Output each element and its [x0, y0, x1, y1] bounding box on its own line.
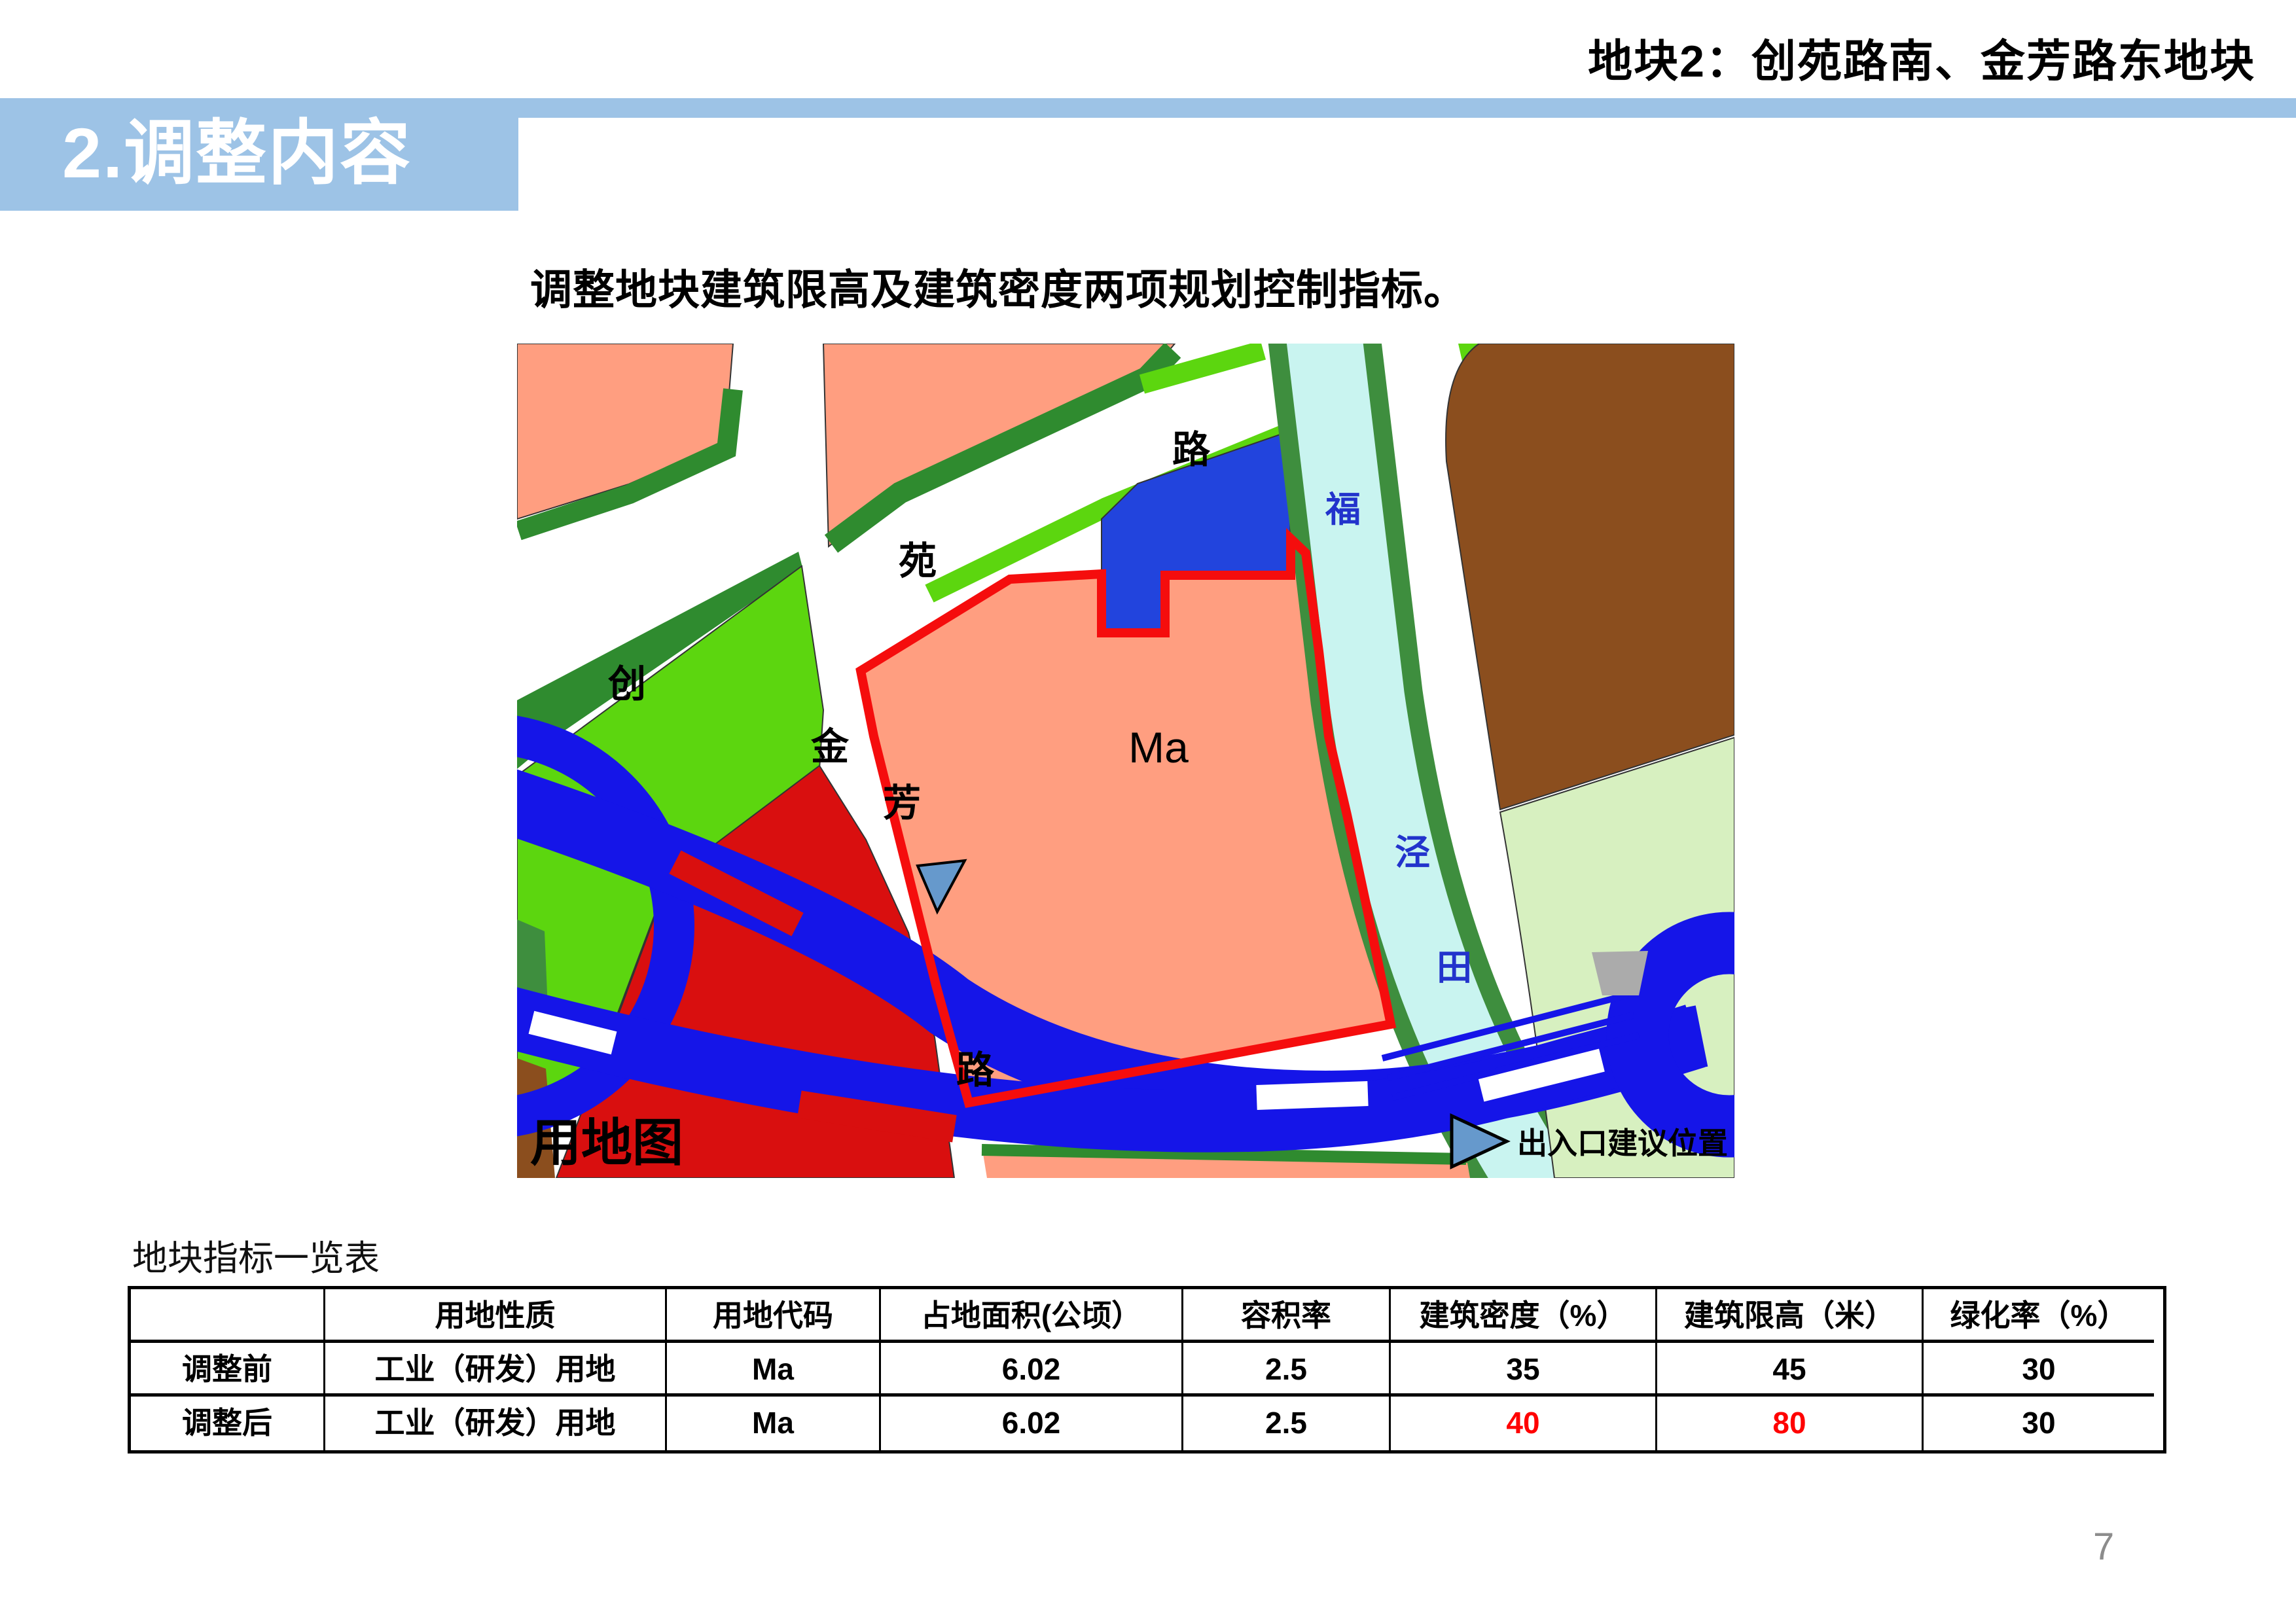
table-cell: 30 — [1924, 1343, 2154, 1397]
table-header-cell: 占地面积(公顷） — [881, 1289, 1183, 1343]
road-label-fang: 芳 — [883, 782, 921, 825]
road-label-yuan: 苑 — [899, 540, 937, 582]
table-header-cell: 建筑密度（%） — [1391, 1289, 1657, 1343]
road-label-jin: 金 — [811, 726, 850, 768]
subtitle-text: 调整地块建筑限高及建筑密度两项规划控制指标。 — [530, 257, 1466, 317]
table-cell: Ma — [667, 1397, 881, 1450]
slide-title: 地块2：创苑路南、金芳路东地块 — [1588, 25, 2255, 90]
table-header-cell: 用地性质 — [325, 1289, 667, 1343]
table-caption: 地块指标一览表 — [132, 1229, 380, 1281]
table-cell: 调整前 — [131, 1343, 325, 1397]
table-cell-highlight: 80 — [1657, 1397, 1924, 1450]
parcel-brown — [1446, 344, 1734, 810]
table-header-cell: 绿化率（%） — [1924, 1289, 2154, 1343]
river-label-fu: 福 — [1325, 490, 1361, 529]
parcel-label-ma: Ma — [1128, 723, 1189, 772]
table-cell: 2.5 — [1183, 1397, 1391, 1450]
table-cell: 6.02 — [881, 1397, 1183, 1450]
legend-entrance-label: 出入口建议位置 — [1517, 1126, 1728, 1160]
table-cell: 工业（研发）用地 — [325, 1397, 667, 1450]
table-header-cell: 建筑限高（米） — [1657, 1289, 1924, 1343]
table-cell: 45 — [1657, 1343, 1924, 1397]
page-number: 7 — [2093, 1525, 2114, 1569]
road-label-lu-top: 路 — [1172, 429, 1211, 471]
section-header-text: 2.调整内容 — [62, 98, 412, 211]
land-use-map-svg: 创 苑 路 金 芳 路 福 泾 田 Ma 用地图 出入口建议位置 — [517, 344, 1734, 1178]
map-corner-label: 用地图 — [530, 1114, 683, 1171]
road-label-lu-bottom: 路 — [956, 1049, 995, 1092]
table-cell: 2.5 — [1183, 1343, 1391, 1397]
table-header-cell: 容积率 — [1183, 1289, 1391, 1343]
road-label-chuang: 创 — [608, 663, 646, 705]
indicator-table: 用地性质 用地代码 占地面积(公顷） 容积率 建筑密度（%） 建筑限高（米） 绿… — [128, 1286, 2166, 1454]
median-slot-white-2 — [1256, 1081, 1368, 1110]
land-use-map: 创 苑 路 金 芳 路 福 泾 田 Ma 用地图 出入口建议位置 — [517, 344, 1734, 1178]
table-cell: Ma — [667, 1343, 881, 1397]
table-header-cell — [131, 1289, 325, 1343]
table-cell: 调整后 — [131, 1397, 325, 1450]
table-header-cell: 用地代码 — [667, 1289, 881, 1343]
table-cell-highlight: 40 — [1391, 1397, 1657, 1450]
river-label-jing: 泾 — [1395, 833, 1430, 872]
river-label-tian: 田 — [1437, 948, 1472, 988]
table-cell: 35 — [1391, 1343, 1657, 1397]
section-header-block: 2.调整内容 — [0, 98, 518, 211]
table-cell: 6.02 — [881, 1343, 1183, 1397]
table-cell: 工业（研发）用地 — [325, 1343, 667, 1397]
table-cell: 30 — [1924, 1397, 2154, 1450]
